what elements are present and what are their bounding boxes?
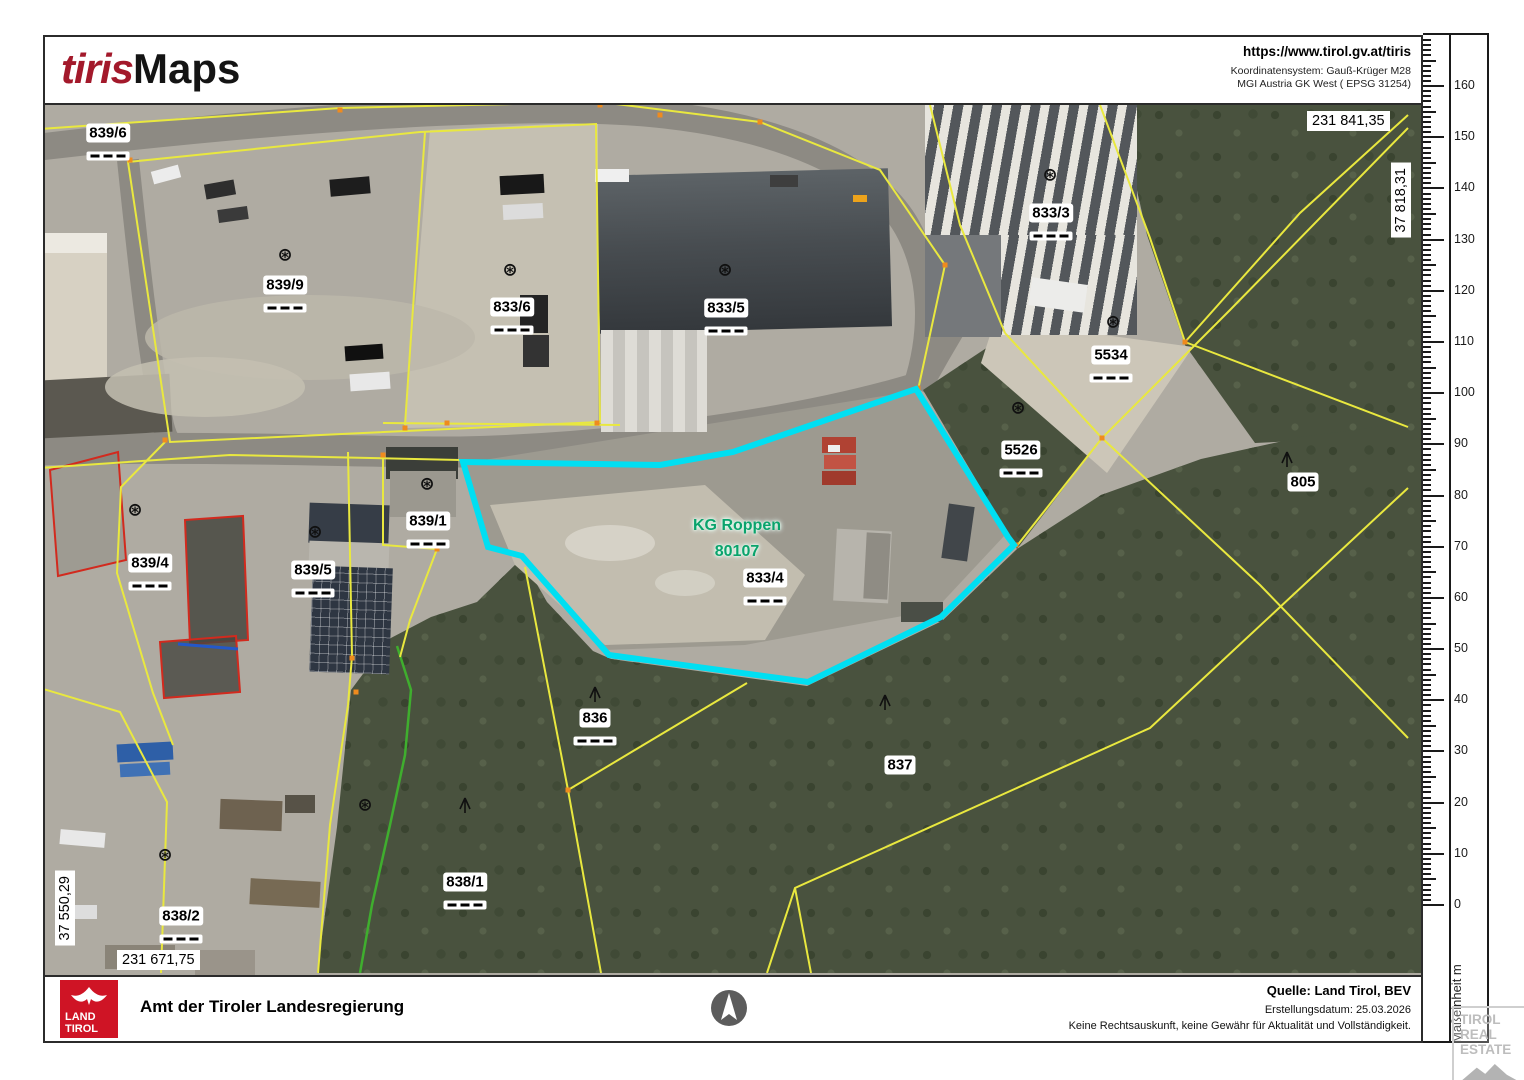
ruler-tick	[1423, 106, 1431, 108]
coordinate-label-right: 37 818,31	[1391, 163, 1411, 238]
ruler-tick	[1423, 735, 1431, 737]
parcel-dash-marker	[1030, 232, 1073, 241]
ruler-tick	[1423, 791, 1431, 793]
parcel-label: 839/1	[406, 512, 450, 531]
ruler-tick	[1423, 387, 1431, 389]
ruler-tick	[1423, 771, 1431, 773]
ruler-tick	[1423, 628, 1431, 630]
parcel-dash-marker	[444, 901, 487, 910]
ruler-tick	[1423, 884, 1431, 886]
ruler-tick	[1423, 300, 1431, 302]
logo-maps: Maps	[133, 45, 240, 92]
ruler-label: 70	[1454, 539, 1484, 553]
ruler-tick	[1423, 249, 1431, 251]
parcel-dash-marker	[264, 304, 307, 313]
ruler-tick	[1423, 750, 1444, 752]
ruler-tick	[1423, 797, 1431, 799]
ruler-tick	[1423, 464, 1431, 466]
ruler-tick	[1423, 541, 1431, 543]
ruler-tick	[1423, 70, 1431, 72]
ruler-tick	[1423, 674, 1436, 676]
ruler-tick	[1423, 715, 1431, 717]
ruler-tick	[1423, 157, 1431, 159]
ruler-tick	[1423, 566, 1431, 568]
ruler-tick	[1423, 90, 1431, 92]
tiris-maps-logo: tirisMaps	[61, 43, 240, 95]
ruler-tick	[1423, 699, 1444, 701]
ruler-tick	[1423, 397, 1431, 399]
ruler-tick	[1423, 274, 1431, 276]
ruler-label: 20	[1454, 795, 1484, 809]
ruler-tick	[1423, 556, 1431, 558]
ruler-tick	[1423, 80, 1431, 82]
ruler-tick	[1423, 39, 1431, 41]
cadastral-symbol-icon: ⊛	[157, 845, 172, 866]
ruler-tick	[1423, 259, 1431, 261]
cadastral-symbol-icon: ⊛	[502, 260, 517, 281]
parcel-label: 837	[884, 756, 915, 775]
ruler-tick	[1423, 305, 1431, 307]
cadastral-symbol-icon: ⊛	[307, 522, 322, 543]
ruler-tick	[1423, 413, 1431, 415]
source-line: Quelle: Land Tirol, BEV	[1069, 983, 1411, 998]
ruler-tick	[1423, 438, 1431, 440]
cadastral-symbol-icon: ⊛	[717, 260, 732, 281]
ruler-tick	[1423, 617, 1431, 619]
ruler-label: 130	[1454, 232, 1484, 246]
ruler-tick	[1423, 336, 1431, 338]
ruler-tick	[1423, 121, 1431, 123]
ruler-tick	[1423, 285, 1431, 287]
ruler-tick	[1423, 684, 1431, 686]
ruler-tick	[1423, 60, 1436, 62]
ruler-tick	[1423, 761, 1431, 763]
ruler-tick	[1423, 643, 1431, 645]
ruler-label: 120	[1454, 283, 1484, 297]
ruler-tick	[1423, 832, 1431, 834]
ruler-tick	[1423, 295, 1431, 297]
ruler-tick	[1423, 469, 1436, 471]
ruler-tick	[1423, 346, 1431, 348]
ruler-tick	[1423, 392, 1444, 394]
ruler-tick	[1423, 730, 1431, 732]
ruler-tick	[1423, 116, 1431, 118]
ruler-tick	[1423, 725, 1436, 727]
parcel-label: 839/5	[291, 561, 335, 580]
cadastral-symbol-icon: ⊛	[1010, 398, 1025, 419]
parcel-dash-marker	[1000, 469, 1043, 478]
building-outline-red	[185, 516, 248, 644]
ruler-tick	[1423, 198, 1431, 200]
tree-symbol-icon	[878, 694, 892, 716]
ruler-tick	[1423, 571, 1436, 573]
ruler-tick	[1423, 208, 1431, 210]
ruler-tick	[1423, 228, 1431, 230]
ruler-tick	[1423, 807, 1431, 809]
ruler-tick	[1423, 136, 1444, 138]
ruler-tick	[1423, 710, 1431, 712]
ruler-tick	[1423, 448, 1431, 450]
aerial-map-view[interactable]: KG Roppen 80107 231 841,35 37 818,31 37 …	[45, 105, 1421, 975]
ruler-tick	[1423, 546, 1444, 548]
organization-title: Amt der Tiroler Landesregierung	[140, 997, 404, 1017]
ruler-tick	[1423, 162, 1436, 164]
ruler-label: 80	[1454, 488, 1484, 502]
ruler-tick	[1423, 95, 1431, 97]
ruler-tick	[1423, 561, 1431, 563]
ruler-tick	[1423, 669, 1431, 671]
ruler-label: 60	[1454, 590, 1484, 604]
ruler-tick	[1423, 612, 1431, 614]
ruler-tick	[1423, 361, 1431, 363]
ruler-tick	[1423, 218, 1431, 220]
ruler-tick	[1423, 479, 1431, 481]
ruler-tick	[1423, 597, 1444, 599]
ruler-tick	[1423, 100, 1431, 102]
ruler-tick	[1423, 500, 1431, 502]
ruler-tick	[1423, 372, 1431, 374]
ruler-tick	[1423, 418, 1436, 420]
ruler-tick	[1423, 740, 1431, 742]
ruler-tick	[1423, 459, 1431, 461]
ruler-tick	[1423, 704, 1431, 706]
ruler-tick	[1423, 658, 1431, 660]
ruler-tick	[1423, 489, 1431, 491]
ruler-tick	[1423, 172, 1431, 174]
ruler-tick	[1423, 638, 1431, 640]
coordinate-label-bottom: 231 671,75	[117, 950, 200, 970]
ruler-tick	[1423, 65, 1431, 67]
ruler-tick	[1423, 280, 1431, 282]
tree-symbol-icon	[458, 797, 472, 819]
parcel-dash-marker	[574, 737, 617, 746]
parcel-dash-marker	[1090, 374, 1133, 383]
ruler-tick	[1423, 817, 1431, 819]
ruler-tick	[1423, 126, 1431, 128]
cadastral-symbol-icon: ⊛	[1042, 165, 1057, 186]
ruler-tick	[1423, 85, 1444, 87]
ruler-tick	[1423, 515, 1431, 517]
header: tirisMaps https://www.tirol.gv.at/tiris …	[45, 37, 1421, 105]
ruler-tick	[1423, 290, 1444, 292]
ruler-tick	[1423, 234, 1431, 236]
ruler-tick	[1423, 433, 1431, 435]
footer: LAND TIROL Amt der Tiroler Landesregieru…	[45, 975, 1421, 1041]
ruler-label: 0	[1454, 897, 1484, 911]
ruler-tick	[1423, 187, 1444, 189]
ruler-tick	[1423, 474, 1431, 476]
ruler-label: 160	[1454, 78, 1484, 92]
ruler-tick	[1423, 873, 1431, 875]
parcel-label: 805	[1287, 473, 1318, 492]
logo-tiris: tiris	[61, 45, 133, 92]
ruler-tick	[1423, 49, 1431, 51]
ruler-tick	[1423, 326, 1431, 328]
ruler-label: 30	[1454, 743, 1484, 757]
parcel-dash-marker	[744, 597, 787, 606]
parcel-label: 839/4	[128, 554, 172, 573]
ruler-tick	[1423, 551, 1431, 553]
ruler-tick	[1423, 756, 1431, 758]
ruler-tick	[1423, 510, 1431, 512]
mountain-icon	[1460, 1064, 1520, 1080]
ruler-tick	[1423, 904, 1444, 906]
ruler-tick	[1423, 623, 1436, 625]
tree-symbol-icon	[588, 686, 602, 708]
ruler-tick	[1423, 812, 1431, 814]
creation-date: Erstellungsdatum: 25.03.2026	[1069, 1004, 1411, 1016]
ruler-tick	[1423, 223, 1431, 225]
coordinate-system-info: Koordinatensystem: Gauß-Krüger M28 MGI A…	[1231, 65, 1411, 91]
ruler-tick	[1423, 653, 1431, 655]
ruler-tick	[1423, 269, 1431, 271]
parcel-label: 833/6	[490, 298, 534, 317]
ruler-tick	[1423, 141, 1431, 143]
ruler-label: 140	[1454, 180, 1484, 194]
ruler-tick	[1423, 167, 1431, 169]
ruler-tick	[1423, 786, 1431, 788]
ruler-tick	[1423, 776, 1436, 778]
ruler-tick	[1423, 536, 1431, 538]
tiris-url: https://www.tirol.gv.at/tiris	[1231, 44, 1411, 59]
ruler-tick	[1423, 766, 1431, 768]
ruler-tick	[1423, 44, 1431, 46]
ruler-tick	[1423, 720, 1431, 722]
ruler-tick	[1423, 745, 1431, 747]
ruler-label: 90	[1454, 436, 1484, 450]
ruler-tick	[1423, 894, 1431, 896]
parcel-label: 838/1	[443, 873, 487, 892]
ruler-label: 100	[1454, 385, 1484, 399]
ruler-tick	[1423, 351, 1431, 353]
parcel-dash-marker	[491, 326, 534, 335]
ruler-tick	[1423, 633, 1431, 635]
ruler-tick	[1423, 495, 1444, 497]
ruler-tick	[1423, 356, 1431, 358]
cadastral-symbol-icon: ⊛	[357, 795, 372, 816]
ruler-tick	[1423, 868, 1431, 870]
ruler-tick	[1423, 408, 1431, 410]
ruler-tick	[1423, 367, 1436, 369]
ruler-tick	[1423, 679, 1431, 681]
ruler-tick	[1423, 520, 1436, 522]
ruler-tick	[1423, 75, 1431, 77]
coordinate-label-top: 231 841,35	[1307, 111, 1390, 131]
ruler-tick	[1423, 607, 1431, 609]
parcel-label: 836	[579, 709, 610, 728]
ruler-tick	[1423, 848, 1431, 850]
cadastral-symbol-icon: ⊛	[419, 474, 434, 495]
parcel-label: 5534	[1091, 346, 1130, 365]
ruler-tick	[1423, 878, 1436, 880]
cadastral-symbol-icon: ⊛	[277, 245, 292, 266]
parcel-label: 838/2	[159, 907, 203, 926]
cadastral-symbol-icon: ⊛	[1105, 312, 1120, 333]
parcel-label: 839/6	[86, 124, 130, 143]
ruler-tick	[1423, 822, 1431, 824]
ruler-tick	[1423, 592, 1431, 594]
ruler-tick	[1423, 193, 1431, 195]
ruler-tick	[1423, 213, 1436, 215]
ruler-label: 50	[1454, 641, 1484, 655]
parcel-label: 839/9	[263, 276, 307, 295]
tree-symbol-icon	[1280, 451, 1294, 473]
ruler-tick	[1423, 454, 1431, 456]
parcel-dash-marker	[292, 589, 335, 598]
ruler-tick	[1423, 244, 1431, 246]
ruler-tick	[1423, 382, 1431, 384]
ruler-tick	[1423, 827, 1436, 829]
ruler-tick	[1423, 582, 1431, 584]
map-sheet-frame: tirisMaps https://www.tirol.gv.at/tiris …	[43, 35, 1423, 1043]
ruler-tick	[1423, 377, 1431, 379]
ruler-tick	[1423, 402, 1431, 404]
ruler-tick	[1423, 889, 1431, 891]
tirol-eagle-icon	[69, 984, 109, 1008]
ruler-tick	[1423, 131, 1431, 133]
ruler-tick	[1423, 152, 1431, 154]
ruler-tick	[1423, 310, 1431, 312]
land-tirol-logo: LAND TIROL	[60, 980, 118, 1038]
ruler-tick	[1423, 587, 1431, 589]
ruler-tick	[1423, 663, 1431, 665]
ruler-label: 40	[1454, 692, 1484, 706]
ruler-tick	[1423, 54, 1431, 56]
ruler-tick	[1423, 177, 1431, 179]
parcel-label: 833/4	[743, 569, 787, 588]
ruler-tick	[1423, 505, 1431, 507]
parcel-dash-marker	[129, 582, 172, 591]
ruler-tick	[1423, 484, 1431, 486]
ruler-tick	[1423, 254, 1431, 256]
ruler-label: 150	[1454, 129, 1484, 143]
parcel-dash-marker	[87, 152, 130, 161]
building-outline-red	[50, 452, 126, 576]
ruler-tick	[1423, 341, 1444, 343]
ruler-label: 10	[1454, 846, 1484, 860]
ruler-tick	[1423, 853, 1444, 855]
ruler-tick	[1423, 648, 1444, 650]
ruler-label: 110	[1454, 334, 1484, 348]
ruler-tick	[1423, 264, 1436, 266]
ruler-tick	[1423, 423, 1431, 425]
north-arrow-icon	[709, 988, 749, 1028]
ruler-tick	[1423, 837, 1431, 839]
ruler-tick	[1423, 315, 1436, 317]
ruler-tick	[1423, 147, 1431, 149]
ruler-tick	[1423, 530, 1431, 532]
ruler-tick	[1423, 689, 1431, 691]
ruler-tick	[1423, 602, 1431, 604]
ruler-tick	[1423, 694, 1431, 696]
parcel-dash-marker	[407, 540, 450, 549]
parcel-label: 833/5	[704, 299, 748, 318]
ruler-tick	[1423, 802, 1444, 804]
ruler-tick	[1423, 781, 1431, 783]
header-meta: https://www.tirol.gv.at/tiris Koordinate…	[1231, 44, 1411, 91]
source-info: Quelle: Land Tirol, BEV Erstellungsdatum…	[1069, 983, 1411, 1032]
ruler-tick	[1423, 321, 1431, 323]
tirol-real-estate-watermark: TIROL REAL ESTATE	[1452, 1006, 1524, 1080]
ruler-tick	[1423, 899, 1431, 901]
cadastral-district-label: KG Roppen 80107	[693, 513, 781, 565]
ruler-tick	[1423, 331, 1431, 333]
ruler-tick	[1423, 203, 1431, 205]
parcel-dash-marker	[705, 327, 748, 336]
ruler-tick	[1423, 443, 1444, 445]
tiris-maps-page: tirisMaps https://www.tirol.gv.at/tiris …	[0, 0, 1524, 1080]
disclaimer: Keine Rechtsauskunft, keine Gewähr für A…	[1069, 1020, 1411, 1032]
ruler-tick	[1423, 111, 1436, 113]
ruler-tick	[1423, 576, 1431, 578]
cadastral-symbol-icon: ⊛	[127, 500, 142, 521]
ruler-tick	[1423, 525, 1431, 527]
ruler-tick	[1423, 428, 1431, 430]
parcel-dash-marker	[160, 935, 203, 944]
ruler-tick	[1423, 863, 1431, 865]
parcel-label: 5526	[1001, 441, 1040, 460]
ruler-tick	[1423, 843, 1431, 845]
coordinate-label-left: 37 550,29	[55, 871, 75, 946]
parcel-label: 833/3	[1029, 204, 1073, 223]
ruler-tick	[1423, 239, 1444, 241]
ruler-tick	[1423, 182, 1431, 184]
ruler-tick	[1423, 858, 1431, 860]
